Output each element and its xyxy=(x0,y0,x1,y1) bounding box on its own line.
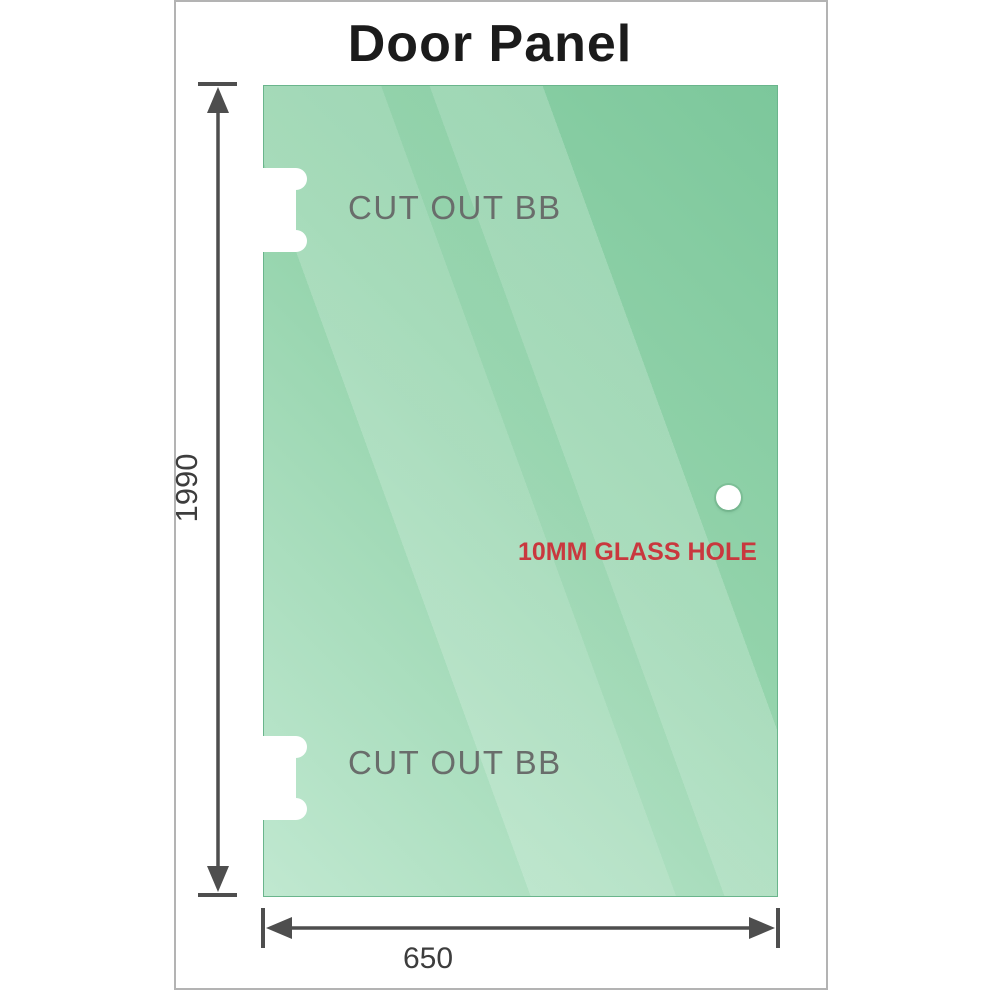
door-panel-diagram: Door Panel CUT OUT BB CUT OUT BB 10MM GL… xyxy=(0,0,1000,1000)
cutout-knob xyxy=(285,736,307,758)
glass-hole-icon xyxy=(716,485,741,510)
glass-panel: CUT OUT BB CUT OUT BB 10MM GLASS HOLE xyxy=(263,85,778,897)
cutout-knob xyxy=(285,168,307,190)
hinge-cutout-bottom xyxy=(263,736,296,820)
cutout-knob xyxy=(285,230,307,252)
cutout-label-bottom: CUT OUT BB xyxy=(348,743,688,783)
height-dimension-value: 1990 xyxy=(167,428,207,548)
width-dimension-value: 650 xyxy=(398,941,458,977)
hinge-cutout-top xyxy=(263,168,296,252)
page-title: Door Panel xyxy=(140,14,840,74)
cutout-label-top: CUT OUT BB xyxy=(348,188,688,228)
cutout-knob xyxy=(285,798,307,820)
glass-hole-label: 10MM GLASS HOLE xyxy=(518,538,757,567)
